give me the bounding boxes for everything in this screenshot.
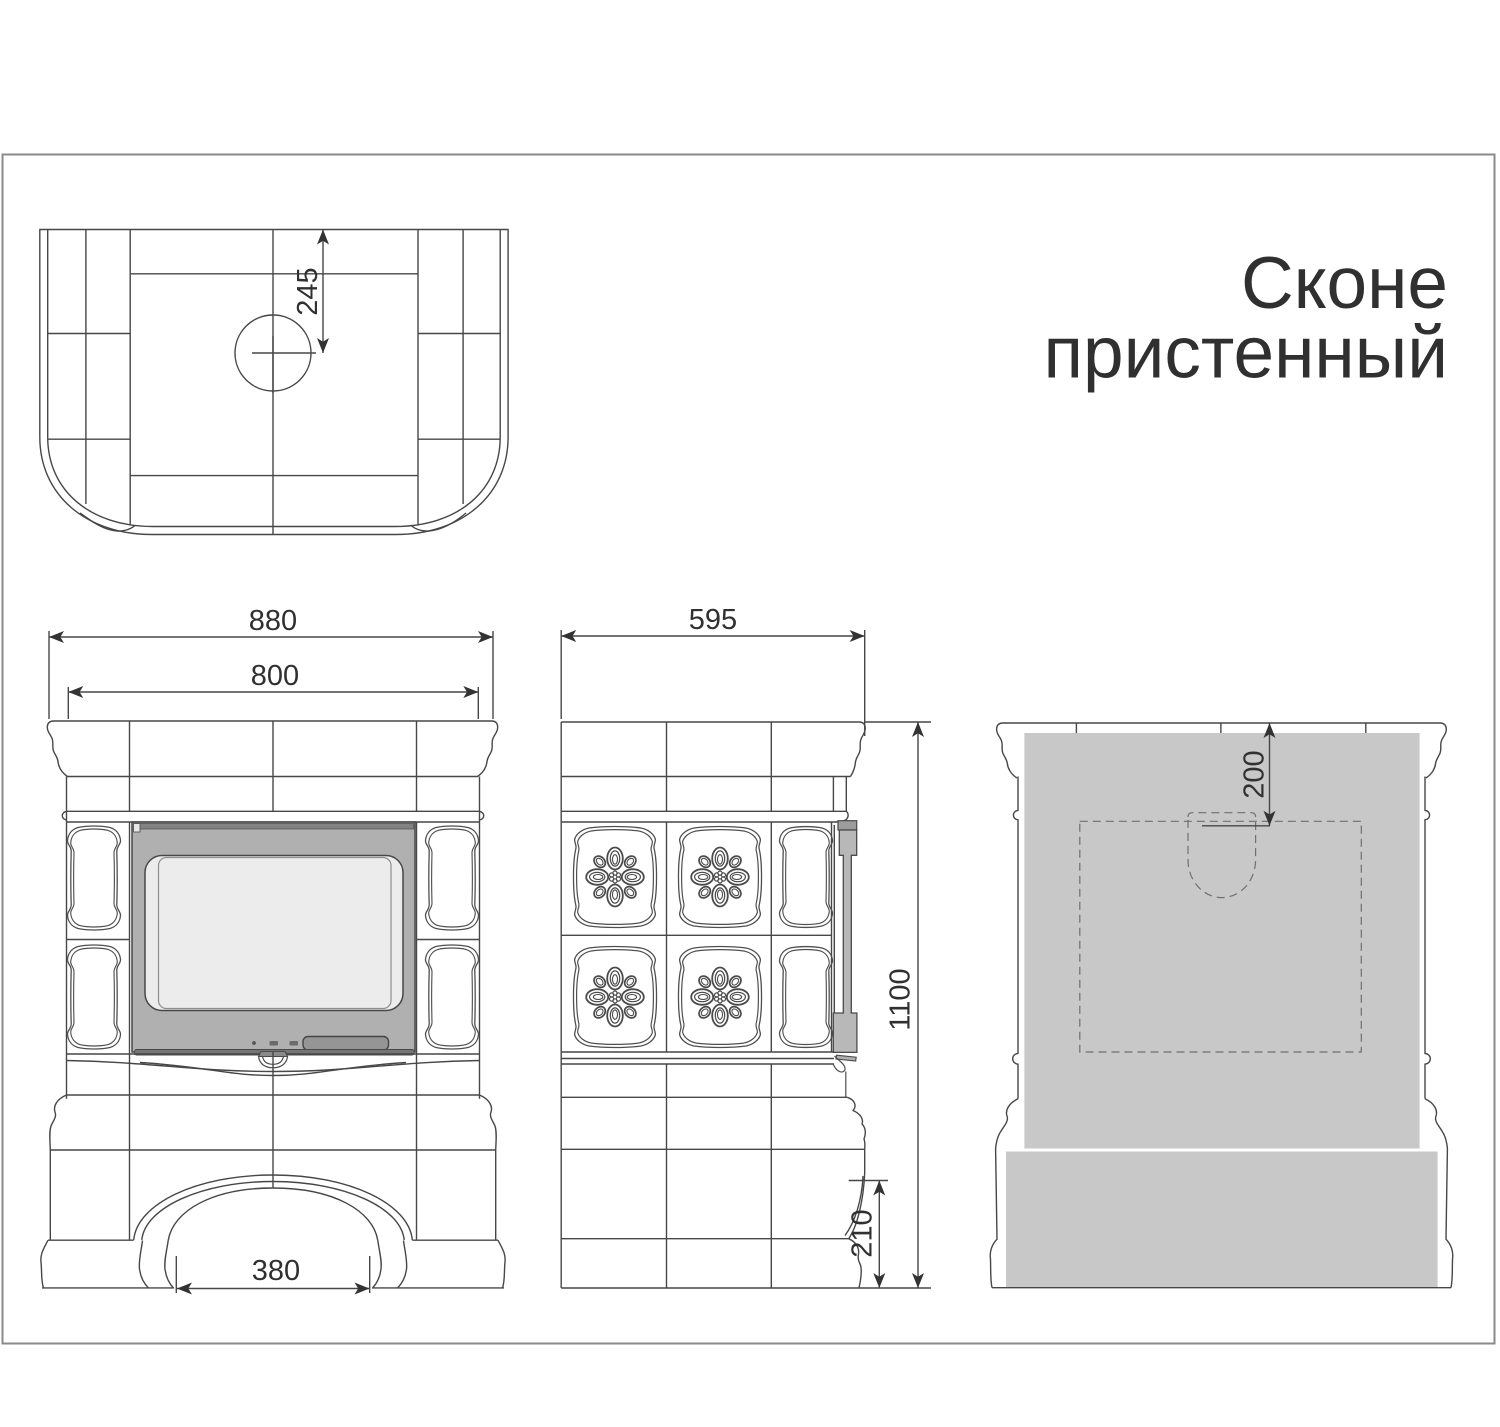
svg-text:800: 800 — [251, 660, 299, 692]
svg-text:245: 245 — [292, 267, 324, 315]
svg-text:пристенный: пристенный — [1044, 313, 1449, 394]
svg-text:595: 595 — [689, 604, 737, 636]
svg-text:380: 380 — [252, 1255, 300, 1287]
svg-text:200: 200 — [1239, 750, 1271, 798]
svg-text:880: 880 — [249, 605, 297, 637]
svg-text:210: 210 — [847, 1209, 879, 1257]
svg-text:1100: 1100 — [884, 968, 916, 1030]
